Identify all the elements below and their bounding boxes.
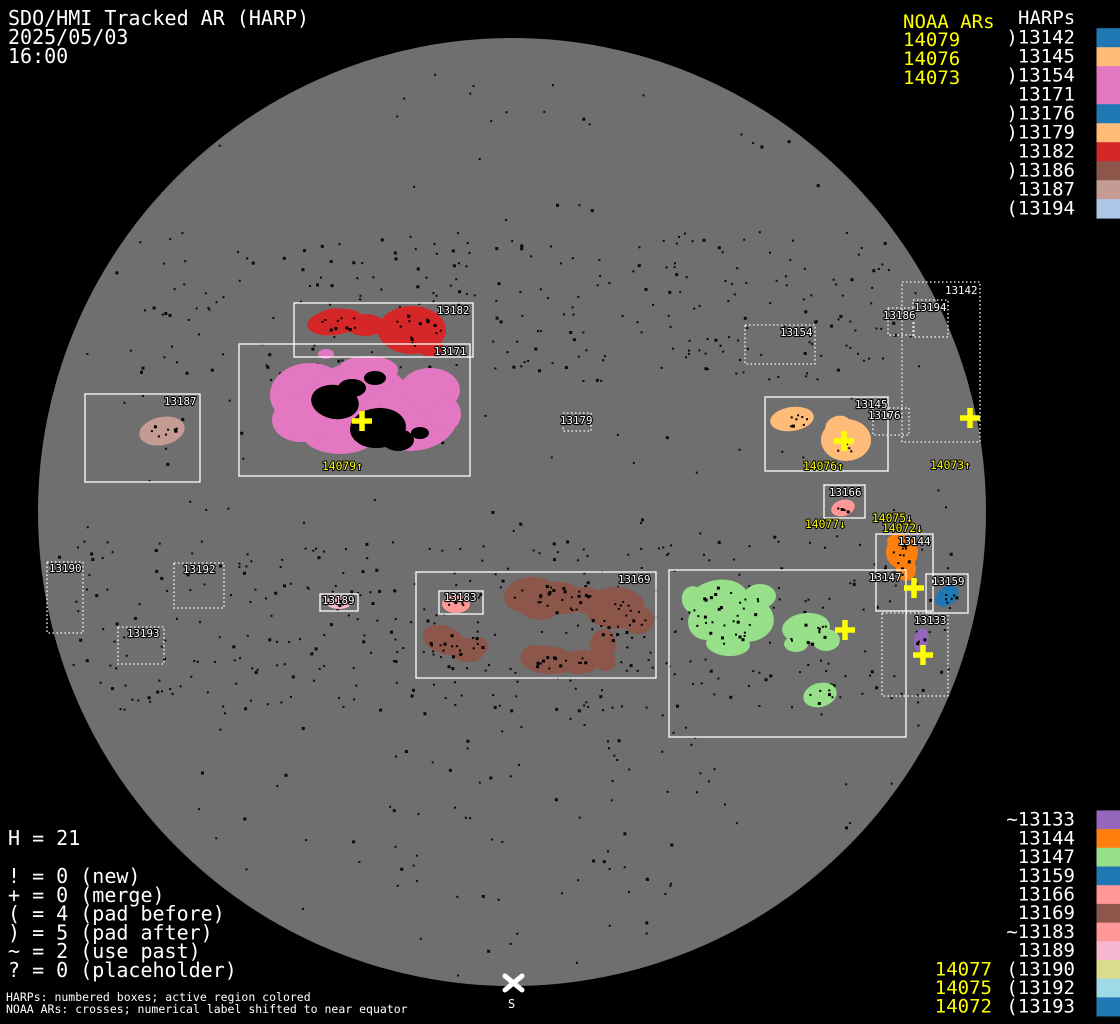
speckle (670, 844, 673, 847)
speckle (284, 663, 286, 665)
umbra-dot (809, 694, 811, 696)
speckle (915, 292, 917, 294)
speckle (469, 93, 471, 95)
umbra-dot (817, 627, 819, 629)
speckle (148, 696, 151, 699)
umbra-dot (165, 434, 167, 436)
speckle (502, 580, 505, 583)
speckle (378, 590, 381, 593)
speckle (807, 664, 809, 666)
speckle (469, 252, 471, 254)
speckle (839, 315, 842, 318)
speckle (944, 629, 946, 631)
speckle (176, 618, 178, 620)
speckle (115, 271, 118, 274)
speckle (227, 508, 229, 510)
speckle (416, 880, 418, 882)
speckle (805, 375, 807, 377)
speckle (607, 740, 609, 742)
speckle (707, 338, 709, 340)
speckle (608, 282, 610, 284)
speckle (211, 369, 214, 372)
speckle (193, 660, 195, 662)
speckle (601, 689, 603, 691)
umbra-dot (828, 693, 831, 696)
umbra-dot (737, 615, 739, 617)
speckle (479, 593, 482, 596)
speckle (576, 962, 578, 964)
speckle (243, 572, 246, 575)
speckle (768, 379, 770, 381)
harp-swatch-13192 (1097, 979, 1120, 998)
speckle (330, 260, 333, 263)
harp-box-label-13169: 13169 (618, 573, 651, 586)
speckle (198, 333, 200, 335)
umbra-dot (744, 632, 746, 634)
umbra-dot (844, 509, 846, 511)
speckle (817, 378, 819, 380)
speckle (520, 365, 522, 367)
speckle (495, 300, 497, 302)
speckle (490, 120, 492, 122)
speckle (413, 865, 415, 867)
speckle (543, 111, 545, 113)
speckle (397, 885, 399, 887)
harp-box-label-13159: 13159 (932, 575, 965, 588)
speckle (394, 252, 397, 255)
speckle (395, 639, 397, 641)
umbra-dot (536, 665, 539, 668)
speckle (205, 509, 207, 511)
speckle (664, 893, 666, 895)
harp-box-label-13186: 13186 (883, 309, 916, 322)
speckle (142, 395, 144, 397)
legend-entry-5: ? = 0 (placeholder) (8, 958, 237, 982)
harp-box-label-13182: 13182 (437, 304, 470, 317)
speckle (872, 269, 875, 272)
speckle (164, 312, 167, 315)
speckle (413, 186, 415, 188)
speckle (149, 701, 151, 703)
speckle (491, 839, 493, 841)
speckle (466, 667, 468, 669)
umbra-dot (459, 653, 462, 656)
speckle (412, 689, 415, 692)
speckle (895, 585, 897, 587)
speckle (708, 780, 710, 782)
speckle (303, 249, 306, 252)
speckle (718, 246, 721, 249)
umbra-dot (832, 696, 834, 698)
speckle (395, 846, 397, 848)
speckle (633, 462, 635, 464)
umbra-dot (837, 508, 839, 510)
harp-box-label-13166: 13166 (829, 486, 862, 499)
speckle (250, 601, 252, 603)
speckle (804, 352, 807, 355)
speckle (161, 690, 163, 692)
umbra-dot (584, 661, 587, 664)
umbra-dot (542, 660, 545, 663)
speckle (246, 257, 248, 259)
speckle (180, 685, 182, 687)
speckle (809, 542, 811, 544)
umbra-dot (643, 636, 645, 638)
umbra-dot (414, 345, 416, 347)
harp-box-label-13154: 13154 (780, 326, 813, 339)
speckle (646, 933, 648, 935)
harp-list-item-13194: (13194 (1006, 198, 1075, 220)
speckle (570, 718, 572, 720)
speckle (102, 557, 104, 559)
speckle (461, 695, 463, 697)
umbra-dot (902, 574, 904, 576)
noaa-list-item-14073: 14073 (903, 67, 960, 89)
umbra-dot (559, 664, 562, 667)
speckle (565, 366, 568, 369)
speckle (674, 673, 676, 675)
speckle (338, 243, 340, 245)
speckle (824, 547, 826, 549)
umbra-dot (473, 647, 475, 649)
speckle (577, 559, 579, 561)
speckle (276, 641, 278, 643)
speckle (288, 641, 290, 643)
speckle (804, 268, 806, 270)
speckle (254, 589, 256, 591)
speckle (582, 118, 585, 121)
speckle (520, 244, 523, 247)
speckle (102, 628, 104, 630)
umbra-dot (354, 327, 356, 329)
speckle (516, 933, 518, 935)
speckle (84, 541, 86, 543)
speckle (252, 262, 255, 265)
umbra-dot (712, 621, 714, 623)
speckle (405, 750, 408, 753)
speckle (166, 463, 169, 466)
speckle (839, 696, 841, 698)
speckle (511, 240, 513, 242)
speckle (589, 123, 591, 125)
harp-box-label-13144: 13144 (898, 535, 931, 548)
harp-swatch-13193 (1097, 997, 1120, 1016)
speckle (573, 338, 576, 341)
speckle (423, 712, 426, 715)
noaa-label-14076: 14076↑ (803, 460, 844, 473)
speckle (459, 548, 461, 550)
speckle (724, 280, 726, 282)
speckle (639, 246, 641, 248)
speckle (524, 361, 526, 363)
speckle (821, 713, 823, 715)
speckle (844, 675, 846, 677)
speckle (673, 732, 675, 734)
speckle (488, 664, 490, 666)
speckle (335, 585, 337, 587)
speckle (552, 84, 554, 86)
speckle (760, 146, 763, 149)
speckle (242, 458, 244, 460)
speckle (861, 247, 863, 249)
speckle (506, 111, 508, 113)
speckle (342, 572, 344, 574)
speckle (620, 661, 622, 663)
umbra-dot (472, 637, 474, 639)
speckle (803, 298, 805, 300)
speckle (864, 651, 866, 653)
speckle (411, 695, 414, 698)
speckle (416, 285, 419, 288)
speckle (577, 625, 579, 627)
speckle (714, 768, 716, 770)
harp-swatch-13144 (1097, 829, 1120, 848)
umbra-dot (330, 329, 333, 332)
speckle (75, 601, 77, 603)
umbra-dot (693, 609, 695, 611)
speckle (688, 353, 690, 355)
speckle (739, 449, 741, 451)
umbra-dot (556, 611, 559, 614)
speckle (676, 243, 678, 245)
speckle (120, 708, 122, 710)
harp-box-label-13133: 13133 (914, 614, 947, 627)
speckle (313, 344, 315, 346)
umbra-patch (411, 427, 429, 439)
harp-count: H = 21 (8, 826, 80, 850)
speckle (163, 263, 165, 265)
speckle (434, 74, 436, 76)
speckle (773, 536, 776, 539)
speckle (714, 339, 717, 342)
umbra-dot (806, 418, 808, 420)
umbra-dot (576, 609, 578, 611)
speckle (107, 541, 109, 543)
umbra-dot (893, 551, 895, 553)
speckle (198, 808, 200, 810)
umbra-dot (628, 605, 630, 607)
umbra-dot (739, 602, 741, 604)
speckle (219, 636, 221, 638)
speckle (222, 353, 224, 355)
speckle (400, 366, 402, 368)
speckle (492, 694, 494, 696)
umbra-dot (744, 635, 746, 637)
umbra-dot (899, 554, 901, 556)
speckle (165, 448, 167, 450)
speckle (310, 652, 313, 655)
harp-swatch-13189 (1097, 941, 1120, 960)
speckle (516, 681, 518, 683)
speckle (247, 553, 249, 555)
umbra-dot (538, 601, 540, 603)
speckle (131, 699, 133, 701)
speckle (859, 544, 861, 546)
speckle (501, 841, 503, 843)
speckle (791, 706, 793, 708)
speckle (467, 242, 469, 244)
speckle (810, 294, 812, 296)
speckle (692, 683, 694, 685)
speckle (366, 557, 368, 559)
harp-box-label-13193: 13193 (127, 627, 160, 640)
speckle (670, 883, 672, 885)
speckle (250, 700, 252, 702)
speckle (474, 294, 476, 296)
speckle (853, 580, 855, 582)
speckle (389, 806, 391, 808)
speckle (477, 621, 479, 623)
speckle (155, 570, 158, 573)
speckle (332, 591, 334, 593)
speckle (602, 709, 604, 711)
speckle (189, 589, 191, 591)
umbra-dot (349, 328, 352, 331)
speckle (857, 353, 859, 355)
sdo-hmi-harp-view: 1319013192131931318713182131711317913154… (0, 0, 1120, 1024)
speckle (473, 85, 475, 87)
speckle (674, 266, 676, 268)
speckle (86, 589, 88, 591)
speckle (483, 545, 485, 547)
speckle (380, 289, 382, 291)
speckle (410, 236, 412, 238)
umbra-dot (847, 510, 850, 513)
umbra-dot (620, 605, 622, 607)
speckle (86, 353, 88, 355)
speckle (395, 257, 398, 260)
harp-swatch-13194 (1097, 199, 1120, 218)
speckle (58, 556, 61, 559)
speckle (425, 277, 427, 279)
umbra-dot (158, 435, 160, 437)
speckle (788, 140, 791, 143)
umbra-dot (625, 631, 628, 634)
speckle (640, 548, 642, 550)
speckle (201, 541, 203, 543)
speckle (868, 358, 870, 360)
speckle (469, 817, 471, 819)
speckle (717, 678, 719, 680)
speckle (350, 590, 353, 593)
speckle (892, 322, 895, 325)
speckle (271, 615, 273, 617)
umbra-dot (610, 634, 612, 636)
speckle (281, 559, 283, 561)
speckle (734, 293, 736, 295)
speckle (112, 551, 114, 553)
speckle (929, 599, 932, 602)
umbra-patch (382, 429, 414, 451)
umbra-dot (176, 428, 178, 430)
speckle (869, 675, 871, 677)
umbra-dot (324, 319, 326, 321)
speckle (219, 565, 222, 568)
speckle (814, 321, 817, 324)
umbra-dot (514, 597, 516, 599)
umbra-dot (400, 326, 402, 328)
speckle (244, 707, 247, 710)
speckle (699, 305, 701, 307)
speckle (583, 548, 585, 550)
speckle (290, 583, 292, 585)
speckle (109, 665, 111, 667)
speckle (556, 204, 559, 207)
umbra-dot (151, 430, 153, 432)
speckle (661, 751, 663, 753)
speckle (169, 238, 171, 240)
speckle (348, 614, 350, 616)
speckle (661, 367, 663, 369)
speckle (201, 772, 204, 775)
speckle (235, 683, 237, 685)
umbra-dot (807, 641, 810, 644)
speckle (599, 695, 602, 698)
speckle (830, 325, 833, 328)
speckle (115, 667, 117, 669)
umbra-dot (822, 626, 824, 628)
umbra-dot (334, 327, 337, 330)
speckle (181, 418, 184, 421)
speckle (853, 583, 856, 586)
umbra-dot (629, 624, 631, 626)
speckle (507, 568, 509, 570)
umbra-dot (451, 634, 454, 637)
speckle (652, 667, 654, 669)
speckle (456, 896, 458, 898)
speckle (357, 618, 359, 620)
umbra-dot (603, 620, 605, 622)
speckle (520, 726, 522, 728)
speckle (395, 756, 397, 758)
speckle (365, 543, 368, 546)
harp-swatch-13187 (1097, 180, 1120, 199)
speckle (415, 248, 417, 250)
speckle (485, 670, 487, 672)
speckle (142, 367, 145, 370)
umbra-dot (791, 416, 793, 418)
speckle (851, 398, 853, 400)
speckle (540, 288, 542, 290)
speckle (319, 668, 321, 670)
speckle (758, 672, 760, 674)
speckle (305, 839, 307, 841)
umbra-dot (580, 662, 582, 664)
speckle (448, 665, 451, 668)
speckle (777, 376, 779, 378)
speckle (333, 336, 335, 338)
speckle (950, 553, 953, 556)
speckle (674, 262, 676, 264)
speckle (302, 908, 304, 910)
speckle (893, 509, 895, 511)
speckle (514, 672, 516, 674)
speckle (450, 285, 452, 287)
harp-swatch-13142 (1097, 28, 1120, 47)
speckle (572, 306, 574, 308)
speckle (243, 817, 246, 820)
umbra-dot (546, 656, 549, 659)
speckle (432, 292, 434, 294)
speckle (724, 803, 726, 805)
speckle (100, 682, 102, 684)
umbra-dot (571, 596, 573, 598)
speckle (698, 349, 700, 351)
speckle (778, 541, 780, 543)
harp-box-label-13171: 13171 (434, 345, 467, 358)
speckle (604, 355, 606, 357)
umbra-patch (338, 379, 366, 397)
